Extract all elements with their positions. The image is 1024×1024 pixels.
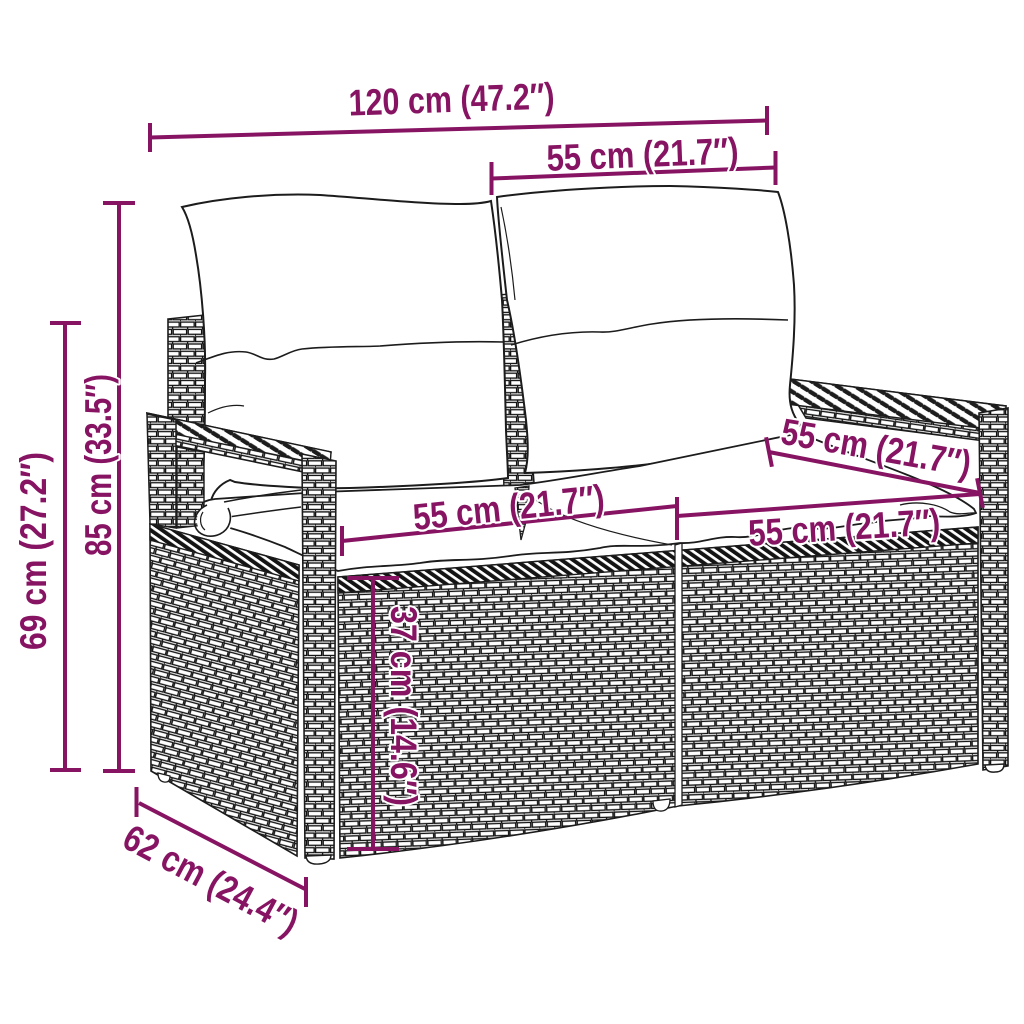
svg-text:120 cm (47.2″): 120 cm (47.2″) (348, 75, 555, 123)
svg-text:69 cm (27.2″): 69 cm (27.2″) (13, 452, 54, 650)
svg-text:85 cm (33.5″): 85 cm (33.5″) (78, 374, 119, 556)
svg-text:37 cm (14.6″): 37 cm (14.6″) (383, 606, 424, 806)
svg-text:55 cm (21.7″): 55 cm (21.7″) (546, 130, 739, 179)
